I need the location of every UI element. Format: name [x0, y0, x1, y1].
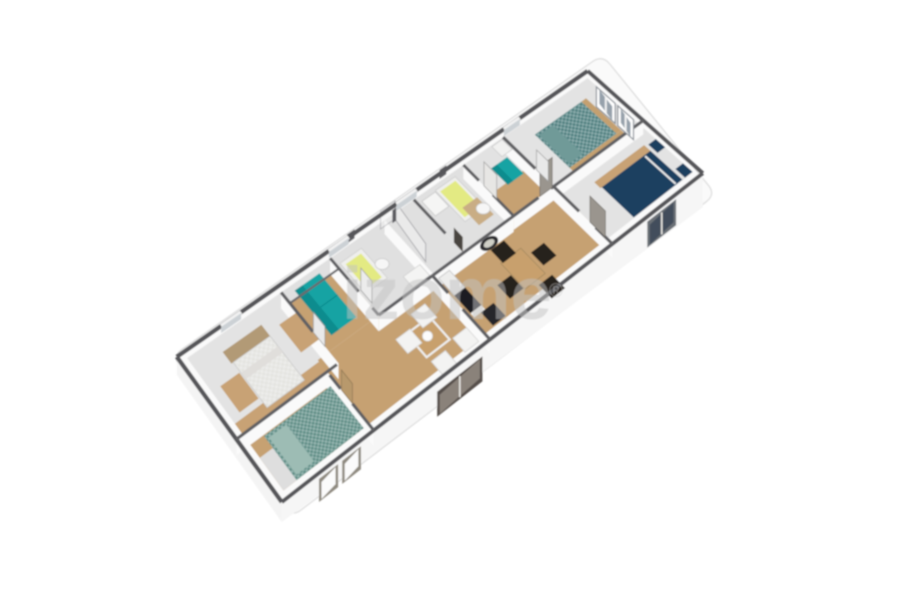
- svg-text:izome: izome: [342, 252, 552, 335]
- svg-text:®: ®: [549, 281, 563, 302]
